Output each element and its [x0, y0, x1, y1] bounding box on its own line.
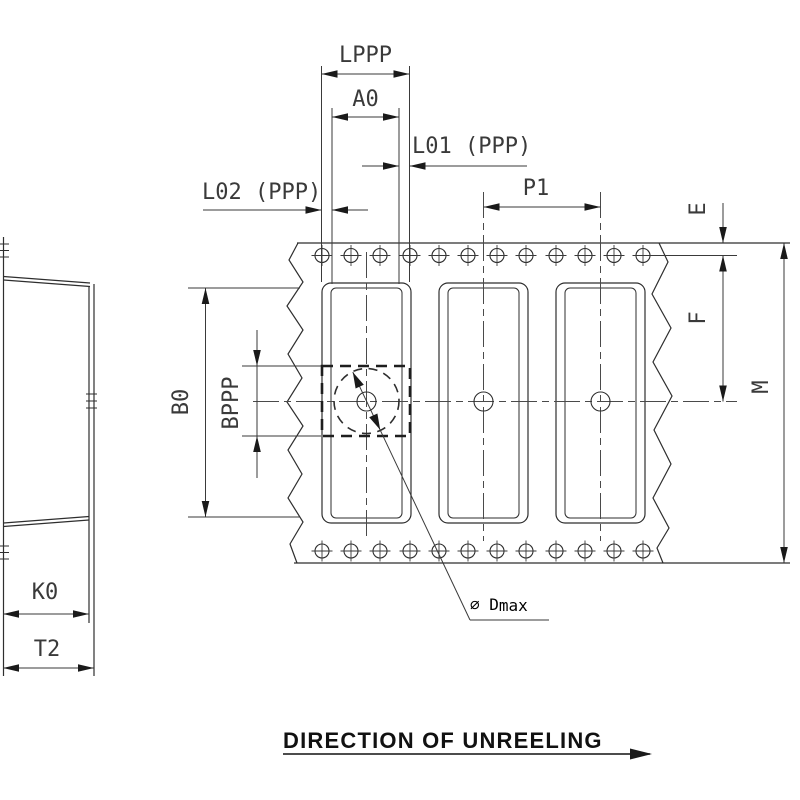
dim-p1: P1 [484, 176, 601, 211]
label-m: M [749, 380, 774, 393]
label-dmax-sub: max [499, 596, 528, 615]
dim-bppp: BPPP [219, 330, 321, 478]
sprocket-hole [546, 245, 567, 266]
label-dmax-prefix: ∅ D [470, 595, 499, 614]
torn-edge-right [652, 243, 672, 563]
technical-drawing-canvas: K0 T2 [0, 0, 800, 800]
sprocket-hole [487, 245, 508, 266]
label-a0: A0 [352, 87, 379, 112]
label-e: E [686, 202, 711, 215]
label-f: F [686, 311, 711, 324]
break-marks-floor [86, 394, 97, 408]
label-lppp: LPPP [339, 43, 392, 68]
dim-m: M [749, 243, 788, 563]
dim-lppp: LPPP [322, 43, 410, 282]
sprocket-hole [370, 245, 391, 266]
pocket-top-wall [4, 277, 91, 287]
label-b0: B0 [169, 389, 194, 416]
sprocket-holes-top-row [312, 245, 654, 266]
sprocket-hole [633, 541, 654, 562]
sprocket-hole [341, 245, 362, 266]
tape-reel-drawing: K0 T2 [0, 0, 800, 800]
sprocket-hole [429, 245, 450, 266]
sprocket-hole [516, 245, 537, 266]
sprocket-hole [516, 541, 537, 562]
pocket-bottom-wall [4, 517, 90, 527]
break-marks-bottom [0, 546, 9, 559]
direction-of-unreeling: DIRECTION OF UNREELING [283, 728, 652, 760]
label-bppp: BPPP [219, 377, 244, 430]
torn-edge-left [287, 243, 303, 563]
sprocket-hole [341, 541, 362, 562]
sprocket-hole [487, 541, 508, 562]
sprocket-holes-bottom-row [312, 541, 654, 562]
direction-label: DIRECTION OF UNREELING [283, 728, 603, 753]
direction-arrow-icon [630, 749, 652, 760]
label-dmax: ∅ Dmax [470, 595, 528, 615]
sprocket-hole [604, 245, 625, 266]
dim-l02: L02 (PPP) [202, 180, 368, 214]
pocket-section-side-view: K0 T2 [0, 237, 97, 676]
sprocket-hole [575, 541, 596, 562]
dim-e: E [686, 202, 727, 243]
dim-l01: L01 (PPP) [362, 134, 531, 170]
sprocket-hole [546, 541, 567, 562]
break-marks-top [0, 244, 9, 257]
tape-top-view [253, 192, 790, 563]
dim-f: F [686, 256, 727, 402]
label-l02: L02 (PPP) [202, 180, 321, 205]
sprocket-hole [370, 541, 391, 562]
label-t2: T2 [34, 637, 61, 662]
sprocket-hole [400, 541, 421, 562]
dim-k0: K0 [3, 580, 89, 618]
dim-t2: T2 [3, 637, 94, 672]
sprocket-hole [604, 541, 625, 562]
label-l01: L01 (PPP) [412, 134, 531, 159]
label-k0: K0 [32, 580, 59, 605]
label-p1: P1 [523, 176, 550, 201]
sprocket-hole [458, 245, 479, 266]
sprocket-hole [429, 541, 450, 562]
sprocket-hole [575, 245, 596, 266]
dim-dmax: ∅ Dmax [353, 372, 549, 620]
dim-a0: A0 [332, 87, 399, 284]
sprocket-hole [458, 541, 479, 562]
sprocket-hole [312, 541, 333, 562]
